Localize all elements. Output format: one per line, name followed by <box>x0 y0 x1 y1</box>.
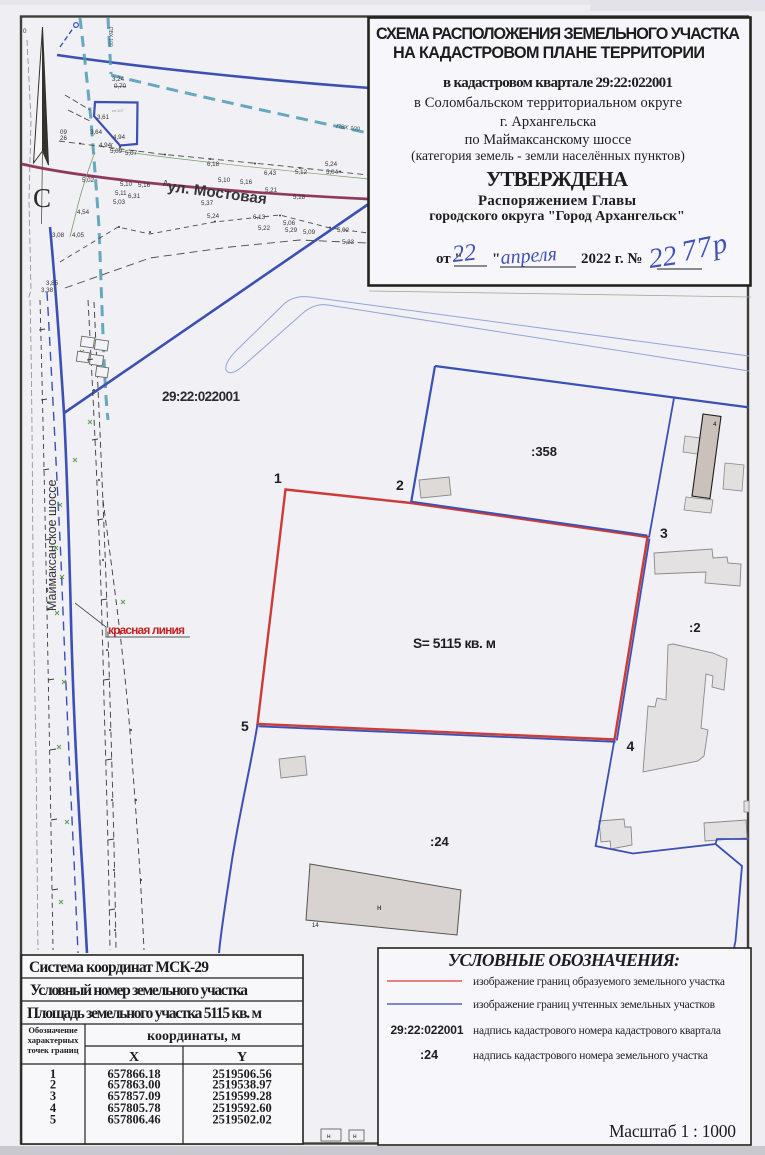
svg-text::24: :24 <box>430 834 450 849</box>
svg-text:5,12: 5,12 <box>295 169 308 176</box>
svg-text:4,54: 4,54 <box>77 209 90 216</box>
svg-text:6,13: 6,13 <box>253 214 266 221</box>
svg-text:29:22:022001: 29:22:022001 <box>162 389 240 404</box>
svg-text:НА КАДАСТРОВОМ ПЛАНЕ ТЕРРИТОРИ: НА КАДАСТРОВОМ ПЛАНЕ ТЕРРИТОРИИ <box>393 44 705 62</box>
svg-text:6,31: 6,31 <box>128 193 141 200</box>
svg-text::24: :24 <box>420 1048 438 1062</box>
svg-text:2: 2 <box>396 477 404 493</box>
svg-text:(категория земель - земли насе: (категория земель - земли населённых пун… <box>411 148 685 163</box>
svg-text:кн:107: кн:107 <box>112 108 125 113</box>
svg-text:УТВЕРЖДЕНА: УТВЕРЖДЕНА <box>486 167 629 191</box>
svg-text:4: 4 <box>627 738 635 754</box>
svg-text:5,06: 5,06 <box>283 220 296 227</box>
svg-text:4: 4 <box>713 421 717 428</box>
svg-text:5,02: 5,02 <box>337 227 350 234</box>
svg-text:2519502.02: 2519502.02 <box>212 1112 271 1126</box>
svg-text:5,29: 5,29 <box>285 227 298 234</box>
svg-text:красная линия: красная линия <box>108 623 185 637</box>
svg-text:изображение границ учтенных зе: изображение границ учтенных земельных уч… <box>473 999 716 1011</box>
svg-text:Масштаб 1 : 1000: Масштаб 1 : 1000 <box>609 1121 736 1141</box>
svg-text:5,02: 5,02 <box>82 177 95 184</box>
svg-text:5,07: 5,07 <box>125 150 138 157</box>
svg-text:3,38: 3,38 <box>41 287 54 294</box>
svg-text:СХЕМА РАСПОЛОЖЕНИЯ ЗЕМЕЛЬНОГО: СХЕМА РАСПОЛОЖЕНИЯ ЗЕМЕЛЬНОГО УЧАСТКА <box>376 25 740 43</box>
svg-text:н: н <box>353 1133 357 1140</box>
svg-text:22: 22 <box>647 240 679 275</box>
svg-text:0,70: 0,70 <box>114 83 127 90</box>
svg-text:5,16: 5,16 <box>138 182 151 189</box>
svg-text:5: 5 <box>241 718 249 734</box>
svg-text:Y: Y <box>237 1050 247 1065</box>
svg-text:0: 0 <box>23 28 27 35</box>
svg-text:изображение границ образуемого: изображение границ образуемого земельног… <box>473 976 725 988</box>
svg-text:5,09: 5,09 <box>303 229 316 236</box>
svg-text:Условный номер земельного учас: Условный номер земельного участка <box>30 982 248 999</box>
svg-text:5,04: 5,04 <box>326 169 339 176</box>
svg-text:S= 5115 кв. м: S= 5115 кв. м <box>413 636 496 651</box>
svg-text:3: 3 <box>660 525 668 541</box>
svg-text:5,11: 5,11 <box>115 190 127 197</box>
svg-text:характерных: характерных <box>28 1035 79 1045</box>
svg-text:Система координат МСК-29: Система координат МСК-29 <box>29 959 209 976</box>
svg-text:г. Архангельска: г. Архангельска <box>500 114 597 130</box>
svg-text::358: :358 <box>531 444 557 459</box>
svg-text:Маймаксанское шоссе: Маймаксанское шоссе <box>45 480 59 611</box>
svg-text:": " <box>492 251 500 267</box>
svg-text:5,10: 5,10 <box>120 181 133 188</box>
svg-text:5,24: 5,24 <box>325 161 338 168</box>
svg-text:координаты, м: координаты, м <box>147 1029 241 1044</box>
svg-text:22: 22 <box>451 240 478 268</box>
svg-text:1: 1 <box>274 470 282 486</box>
svg-text:5: 5 <box>50 1112 56 1126</box>
svg-text:3,08: 3,08 <box>52 232 65 239</box>
svg-text:657806.46: 657806.46 <box>107 1112 160 1126</box>
svg-text:по Маймаксанскому шоссе: по Маймаксанскому шоссе <box>465 132 632 148</box>
svg-text:городского округа "Город Архан: городского округа "Город Архангельск" <box>429 209 685 224</box>
svg-text:5,16: 5,16 <box>240 179 253 186</box>
svg-text:3,61: 3,61 <box>97 114 110 121</box>
svg-text:5,24: 5,24 <box>207 213 220 220</box>
svg-text:3,85: 3,85 <box>46 280 59 287</box>
svg-text:апреля: апреля <box>500 243 558 269</box>
svg-text:в Соломбальском территориально: в Соломбальском территориальном округе <box>414 95 682 111</box>
svg-text:5,03: 5,03 <box>113 199 126 206</box>
svg-text:ПВХ 100: ПВХ 100 <box>107 27 113 47</box>
svg-text:УСЛОВНЫЕ ОБОЗНАЧЕНИЯ:: УСЛОВНЫЕ ОБОЗНАЧЕНИЯ: <box>448 950 680 970</box>
svg-text:29:22:022001: 29:22:022001 <box>391 1023 464 1037</box>
svg-text:4,94: 4,94 <box>113 134 126 141</box>
svg-text:Распоряжением Главы: Распоряжением Главы <box>478 193 636 209</box>
svg-text:14: 14 <box>312 923 319 929</box>
svg-text:6,18: 6,18 <box>207 161 220 168</box>
svg-text:Обозначение: Обозначение <box>28 1025 78 1035</box>
svg-text:надпись кадастрового номера зе: надпись кадастрового номера земельного у… <box>473 1050 708 1062</box>
svg-text:точек границ: точек границ <box>27 1045 78 1055</box>
svg-text:Площадь земельного участка 511: Площадь земельного участка 5115 кв. м <box>27 1005 262 1022</box>
svg-text:4,05: 4,05 <box>72 232 85 239</box>
svg-text:С: С <box>33 183 51 213</box>
svg-text:3,64: 3,64 <box>90 129 103 136</box>
svg-text:5,18: 5,18 <box>293 194 306 201</box>
svg-text:в кадастровом квартале 29:22:0: в кадастровом квартале 29:22:022001 <box>443 75 673 91</box>
svg-text:2022 г. №: 2022 г. № <box>581 251 642 267</box>
svg-text:н: н <box>327 1133 331 1140</box>
svg-text::2: :2 <box>689 620 701 635</box>
svg-text:5,23: 5,23 <box>342 239 355 246</box>
svg-text:н: н <box>377 903 381 912</box>
svg-text:надпись кадастрового номера ка: надпись кадастрового номера кадастрового… <box>473 1025 721 1037</box>
svg-text:А: А <box>163 179 169 188</box>
svg-text:3,24: 3,24 <box>112 76 125 83</box>
svg-text:5,09: 5,09 <box>110 148 123 155</box>
svg-text:X: X <box>129 1050 139 1065</box>
svg-text:5,37: 5,37 <box>201 200 214 207</box>
svg-text:26: 26 <box>60 135 67 142</box>
svg-text:6,43: 6,43 <box>264 170 277 177</box>
svg-text:5,22: 5,22 <box>258 225 271 232</box>
svg-text:5,10: 5,10 <box>218 177 231 184</box>
